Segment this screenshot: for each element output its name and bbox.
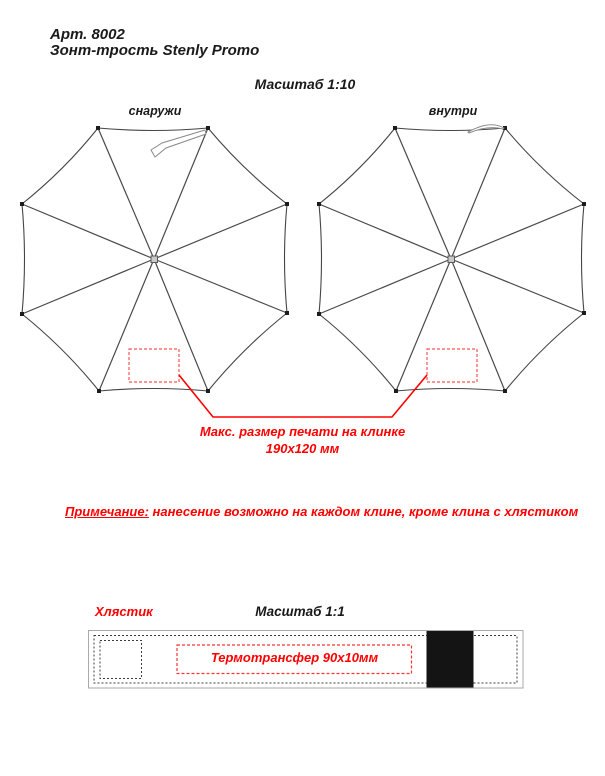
scale-label-1-10: Масштаб 1:10 [155, 76, 455, 92]
note-text: нанесение возможно на каждом клине, кром… [153, 504, 579, 519]
umbrella-right-hub [448, 256, 455, 263]
umbrella-right-view-label: внутри [408, 104, 498, 118]
thermal-transfer-label: Термотрансфер 90х10мм [177, 650, 412, 665]
print-size-line2: 190х120 мм [155, 440, 450, 457]
umbrella-left-drawing [20, 126, 289, 393]
note-label: Примечание: [65, 504, 149, 519]
scale-label-1-1: Масштаб 1:1 [150, 604, 450, 619]
umbrella-left-view-label: снаружи [110, 104, 200, 118]
print-size-callout: Макс. размер печати на клинке 190х120 мм [155, 423, 450, 457]
title-block: Арт. 8002 Зонт-трость Stenly Promo [50, 27, 259, 59]
strap-fastener-black-patch [427, 631, 474, 688]
umbrella-right-drawing [317, 125, 586, 393]
product-name: Зонт-трость Stenly Promo [50, 43, 259, 59]
article-number: Арт. 8002 [50, 27, 259, 43]
note-line: Примечание: нанесение возможно на каждом… [65, 504, 578, 519]
strap-label: Хлястик [95, 604, 153, 619]
spec-sheet-page: Арт. 8002 Зонт-трость Stenly Promo Масшт… [0, 0, 605, 776]
print-size-line1: Макс. размер печати на клинке [155, 423, 450, 440]
umbrella-left-hub [151, 256, 158, 263]
